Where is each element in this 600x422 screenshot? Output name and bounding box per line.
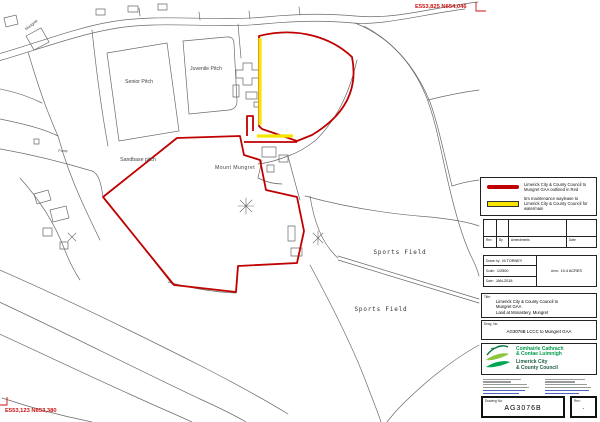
- title-block: Title: Limerick City & County Council to…: [481, 293, 597, 318]
- revision-table: Rev By Amendments Date: [483, 219, 597, 248]
- drawing-number-label: Drawing No:: [485, 399, 561, 403]
- legend-label: Limerick City & County Council to Mungre…: [524, 182, 593, 192]
- council-address-text: [481, 377, 597, 394]
- title-line-3: Land at Monastery, Mungret: [496, 310, 594, 315]
- logo-irish-line2: & Contae Luimnigh: [516, 352, 564, 358]
- council-logo-block: Comhairle Cathrach & Contae Luimnigh Lim…: [481, 343, 597, 375]
- coordinate-markers: [0, 2, 486, 405]
- revision-header-date: Date: [567, 237, 596, 247]
- rev-box-value: -: [574, 406, 593, 412]
- drawing-number-value: AG3076B: [485, 405, 561, 412]
- sports-field-lower-label: Sports Field: [355, 306, 408, 313]
- legend: Limerick City & County Council to Mungre…: [480, 177, 597, 216]
- scale-row: Scale: 1/2500: [484, 266, 536, 276]
- waylease-highlight: [257, 38, 293, 136]
- revision-header-by: By: [497, 237, 509, 247]
- drawn-by-row: Drawn by: M.TORNEY: [484, 256, 536, 266]
- legend-item-waylease: 5m maintenance waylease to Limerick City…: [487, 196, 593, 211]
- drwg-no-block: Drwg. No: AG3076B LCCC to Mungret GAA: [481, 320, 597, 340]
- date-label: Date:: [486, 279, 494, 283]
- rev-box: Rev: -: [570, 396, 597, 418]
- coordinate-top-right: E553,825 N654,046: [415, 4, 467, 10]
- council-logo-icon: [484, 345, 514, 373]
- scale-value: 1/2500: [497, 269, 509, 273]
- revision-header-row: Rev By Amendments Date: [484, 236, 596, 247]
- drwg-no-label: Drwg. No:: [484, 322, 594, 326]
- drawing-number-box: Drawing No: AG3076B: [481, 396, 565, 418]
- coordinate-bottom-left: E553,123 N653,380: [5, 408, 57, 414]
- area-label: Area:: [551, 269, 559, 273]
- legend-item-red-boundary: Limerick City & County Council to Mungre…: [487, 182, 593, 192]
- drawn-by-value: M.TORNEY: [502, 259, 522, 263]
- date-value: JAN-2018: [496, 279, 513, 283]
- senior-pitch-label: Senior Pitch: [125, 79, 153, 85]
- pump-label: Pump: [58, 149, 67, 153]
- revision-empty-row: [484, 220, 596, 236]
- juvenile-pitch-label: Juvenile Pitch: [190, 66, 222, 72]
- sandbase-pitch-label: Sandbase pitch: [120, 157, 156, 163]
- address-column-right: [543, 377, 597, 394]
- legend-label: 5m maintenance waylease to Limerick City…: [524, 196, 593, 211]
- area-cell: Area: 10.4 ACRES: [537, 256, 596, 286]
- rev-box-label: Rev:: [574, 399, 593, 403]
- drawn-by-label: Drawn by:: [486, 259, 500, 263]
- date-row: Date: JAN-2018: [484, 277, 536, 286]
- scale-label: Scale:: [486, 269, 495, 273]
- red-line-swatch: [487, 185, 519, 189]
- planning-map-page: Senior Pitch Juvenile Pitch Sandbase pit…: [0, 0, 600, 422]
- area-value: 10.4 ACRES: [561, 269, 582, 273]
- mungret-label: Mungret: [24, 18, 39, 32]
- drwg-no-value: AG3076B LCCC to Mungret GAA: [484, 329, 594, 334]
- map-linework: [0, 2, 479, 422]
- drawing-info-block: Drawn by: M.TORNEY Scale: 1/2500 Date: J…: [483, 255, 597, 287]
- yellow-waylease-swatch: [487, 201, 519, 207]
- revision-header-amendments: Amendments: [509, 237, 567, 247]
- sports-field-upper-label: Sports Field: [374, 249, 427, 256]
- logo-english-line2: & County Council: [516, 366, 564, 372]
- revision-header-rev: Rev: [484, 237, 497, 247]
- mount-mungret-label: Mount Mungret: [215, 165, 255, 171]
- address-column-left: [481, 377, 535, 394]
